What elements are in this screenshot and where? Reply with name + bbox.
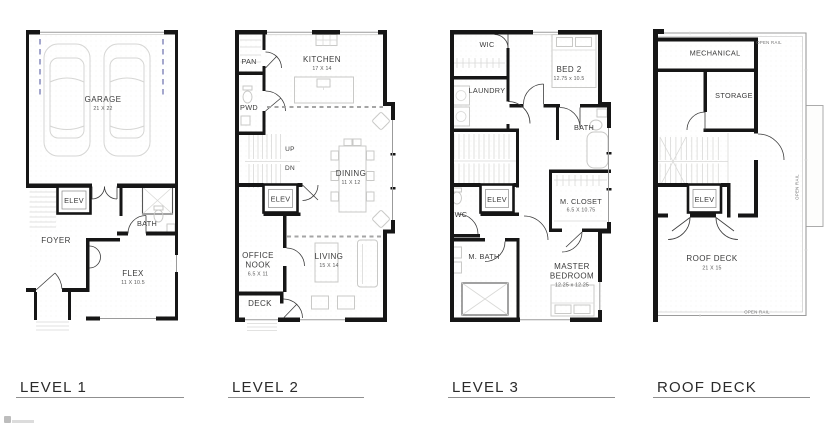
room-dims-flex: 11 X 10.5 [121,280,145,286]
open-rail-label-top: OPEN RAIL [756,40,782,45]
room-label-mechanical: MECHANICAL [690,49,741,58]
plan-title-level2: LEVEL 2 [228,378,364,398]
room-dims-master: 12.25 x 12.25 [555,283,589,289]
room-dims-living: 15 X 14 [319,263,338,269]
room-label-dining: DINING [336,169,366,178]
room-label-roofdeck: ROOF DECK [686,254,737,263]
room-label-storage: STORAGE [715,91,753,100]
room-dims-garage: 21 X 22 [93,106,112,112]
room-label-elev-l3: ELEV [487,195,507,204]
room-label-elev-l1: ELEV [64,196,84,205]
room-label-deck: DECK [248,299,272,308]
room-label-bath-l3: BATH [574,123,594,132]
room-label-garage: GARAGE [85,95,122,104]
plan-title-level1: LEVEL 1 [16,378,184,398]
room-label-bed2: BED 2 [556,65,581,74]
room-dims-mcloset: 6.5 X 10.75 [567,208,596,214]
room-label-office-line1: OFFICE [242,251,274,260]
level1-floor-plan: GARAGE 21 X 22 ELEV BATH FOYER FLEX 11 X… [24,26,184,332]
room-label-mbath: M. BATH [468,252,499,261]
room-label-kitchen: KITCHEN [303,55,341,64]
roof-deck-floor-plan: MECHANICAL STORAGE ELEV ROOF DECK 21 X 1… [651,26,831,332]
watermark-logo [4,416,11,423]
watermark-text-smudge [12,420,34,423]
level2-floor-plan: PAN KITCHEN 17 X 14 PWD UP DN DINING 11 … [231,26,407,332]
floor-plan-sheet: GARAGE 21 X 22 ELEV BATH FOYER FLEX 11 X… [0,0,840,431]
room-dims-dining: 11 X 12 [342,180,361,186]
plan-title-roofdeck: ROOF DECK [653,378,810,398]
room-label-master-line1: MASTER [554,262,590,271]
room-dims-bed2: 12.75 x 10.5 [554,76,585,82]
room-label-foyer: FOYER [41,236,71,245]
room-label-mcloset: M. CLOSET [560,197,602,206]
room-label-wic: WIC [479,40,494,49]
open-rail-label-right: OPEN RAIL [795,174,800,200]
open-rail-label-bottom: OPEN RAIL [744,310,770,315]
room-dims-roofdeck: 21 X 15 [702,266,721,272]
room-label-elev-rd: ELEV [695,195,715,204]
room-label-office-line2: NOOK [245,261,270,270]
room-label-laundry: LAUNDRY [469,86,506,95]
room-label-flex: FLEX [122,269,144,278]
plan-title-level3: LEVEL 3 [448,378,615,398]
room-label-wc: WC [455,210,468,219]
stair-label-up: UP [285,146,295,153]
room-label-master-line2: BEDROOM [550,272,594,281]
room-label-living: LIVING [315,252,344,261]
room-dims-kitchen: 17 X 14 [312,66,331,72]
stair-label-dn: DN [285,165,295,172]
room-label-bath-l1: BATH [137,219,157,228]
room-label-elev-l2: ELEV [271,195,291,204]
room-dims-office: 6.5 X 11 [248,272,269,278]
room-label-pwd: PWD [240,103,258,112]
level3-floor-plan: WIC BED 2 12.75 x 10.5 LAUNDRY BATH ELEV… [446,26,620,332]
room-label-pan: PAN [241,57,256,66]
